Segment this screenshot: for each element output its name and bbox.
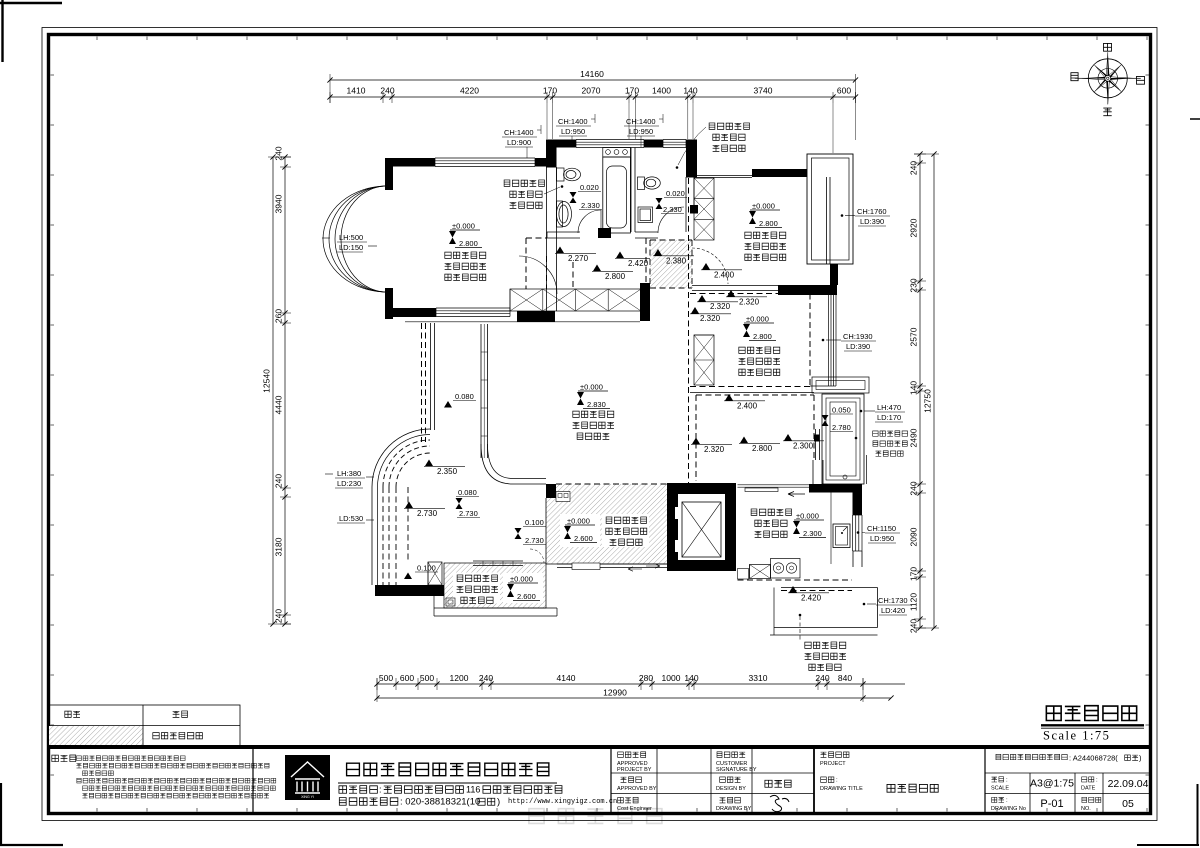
- svg-text:0.100: 0.100: [525, 518, 544, 527]
- svg-text:140: 140: [684, 673, 698, 683]
- svg-text::: :: [379, 785, 382, 795]
- svg-text:170: 170: [543, 86, 557, 96]
- svg-text:P-01: P-01: [1040, 798, 1063, 810]
- svg-text:CH:1400: CH:1400: [504, 128, 534, 137]
- svg-text:DATE: DATE: [1081, 786, 1096, 792]
- svg-text:2490: 2490: [909, 428, 919, 447]
- svg-text:2.270: 2.270: [568, 254, 589, 263]
- svg-text:14160: 14160: [580, 69, 604, 79]
- svg-text:240: 240: [815, 673, 829, 683]
- svg-text:12540: 12540: [262, 369, 272, 393]
- svg-text:A3@1:75: A3@1:75: [1030, 778, 1074, 790]
- svg-text:2.380: 2.380: [666, 257, 687, 266]
- svg-text:2.800: 2.800: [753, 332, 772, 341]
- svg-text:LD:390: LD:390: [846, 342, 870, 351]
- svg-text:±0.000: ±0.000: [796, 512, 819, 521]
- svg-text:LH:500: LH:500: [339, 233, 363, 242]
- svg-text:LD:950: LD:950: [561, 127, 585, 136]
- svg-text:2.780: 2.780: [832, 423, 851, 432]
- svg-text:600: 600: [400, 673, 414, 683]
- svg-text:280: 280: [639, 673, 653, 683]
- svg-text:2.400: 2.400: [737, 402, 758, 411]
- svg-text:2.300: 2.300: [793, 442, 814, 451]
- svg-text:3180: 3180: [274, 537, 284, 556]
- svg-text:2.730: 2.730: [417, 509, 438, 518]
- svg-text:LD:530: LD:530: [339, 514, 363, 523]
- svg-text:1400: 1400: [652, 86, 671, 96]
- svg-text:2070: 2070: [582, 86, 601, 96]
- svg-text:3740: 3740: [754, 86, 773, 96]
- svg-text:PROJECT: PROJECT: [820, 761, 846, 767]
- svg-text:840: 840: [838, 673, 852, 683]
- svg-text:116: 116: [466, 785, 480, 795]
- svg-text:2.420: 2.420: [801, 594, 822, 603]
- svg-text:CH:1730: CH:1730: [878, 596, 908, 605]
- svg-text:NO.: NO.: [1081, 806, 1091, 812]
- svg-text:2.830: 2.830: [587, 400, 606, 409]
- svg-text:1410: 1410: [347, 86, 366, 96]
- svg-text:4440: 4440: [274, 395, 284, 414]
- svg-text:240: 240: [274, 609, 284, 623]
- svg-text:22.09.04: 22.09.04: [1108, 778, 1149, 790]
- svg-text:240: 240: [274, 146, 284, 160]
- svg-text:240: 240: [909, 481, 919, 495]
- svg-text:PROJECT BY: PROJECT BY: [617, 767, 652, 773]
- svg-text:240: 240: [909, 619, 919, 633]
- svg-text:APPROVED BY: APPROVED BY: [617, 786, 657, 792]
- svg-text:12750: 12750: [923, 389, 933, 413]
- svg-text:260: 260: [274, 309, 284, 323]
- svg-text:DRAWING TITLE: DRAWING TITLE: [820, 786, 863, 792]
- svg-text:0.100: 0.100: [417, 564, 436, 573]
- svg-text:LD:170: LD:170: [877, 413, 901, 422]
- svg-text:2920: 2920: [909, 218, 919, 237]
- svg-text:240: 240: [380, 86, 394, 96]
- svg-text:240: 240: [274, 474, 284, 488]
- svg-text:170: 170: [909, 567, 919, 581]
- svg-text:240: 240: [909, 161, 919, 175]
- svg-text:12990: 12990: [603, 688, 627, 698]
- svg-text:3310: 3310: [749, 673, 768, 683]
- svg-text:140: 140: [683, 86, 697, 96]
- svg-text:2.320: 2.320: [739, 298, 760, 307]
- svg-text:4220: 4220: [460, 86, 479, 96]
- svg-text:2.600: 2.600: [574, 534, 593, 543]
- svg-text:2.730: 2.730: [525, 536, 544, 545]
- svg-text:XING YI: XING YI: [301, 795, 314, 799]
- svg-text:CH:1150: CH:1150: [867, 524, 896, 533]
- svg-text:: A244068728(: : A244068728(: [1069, 754, 1118, 763]
- svg-text:0.080: 0.080: [458, 488, 477, 497]
- svg-text:2.320: 2.320: [710, 302, 731, 311]
- svg-text:1200: 1200: [450, 673, 469, 683]
- svg-text:2090: 2090: [909, 527, 919, 546]
- svg-text:1120: 1120: [909, 593, 919, 612]
- svg-text:2570: 2570: [909, 327, 919, 346]
- svg-text:240: 240: [479, 673, 493, 683]
- svg-text:LD:420: LD:420: [881, 606, 905, 615]
- svg-text:±0.000: ±0.000: [746, 315, 769, 324]
- svg-text:140: 140: [909, 381, 919, 395]
- svg-text:CH:1400: CH:1400: [626, 117, 656, 126]
- svg-text:2.800: 2.800: [459, 239, 478, 248]
- svg-text:500: 500: [420, 673, 434, 683]
- svg-text:2.320: 2.320: [700, 314, 721, 323]
- svg-text:LD:950: LD:950: [629, 127, 653, 136]
- svg-text:170: 170: [625, 86, 639, 96]
- svg-text:2.300: 2.300: [803, 529, 822, 538]
- svg-text:0.050: 0.050: [832, 406, 851, 415]
- svg-text:±0.000: ±0.000: [580, 383, 603, 392]
- svg-text:http://www.xingyigz.com.cn: http://www.xingyigz.com.cn: [508, 798, 617, 806]
- svg-text:1000: 1000: [662, 673, 681, 683]
- svg-text:LD:390: LD:390: [860, 217, 884, 226]
- svg-text:500: 500: [379, 673, 393, 683]
- svg-text:LD:950: LD:950: [870, 534, 894, 543]
- svg-text:±0.000: ±0.000: [510, 575, 533, 584]
- svg-text:CH:1400: CH:1400: [558, 117, 588, 126]
- svg-text:2.350: 2.350: [437, 467, 458, 476]
- svg-text:2.320: 2.320: [704, 445, 725, 454]
- svg-text:2.800: 2.800: [752, 444, 773, 453]
- svg-text:LD:150: LD:150: [339, 243, 363, 252]
- svg-text:CH:1760: CH:1760: [857, 207, 887, 216]
- svg-text:±0.000: ±0.000: [567, 517, 590, 526]
- svg-text:LD:900: LD:900: [507, 138, 531, 147]
- svg-text:05: 05: [1122, 798, 1134, 810]
- svg-text:SCALE: SCALE: [991, 786, 1009, 792]
- svg-text:DESIGN BY: DESIGN BY: [716, 786, 746, 792]
- svg-text:Cost Engineer: Cost Engineer: [617, 806, 652, 812]
- svg-text:): ): [497, 797, 500, 808]
- svg-text:600: 600: [837, 86, 851, 96]
- svg-text:Scale 1:75: Scale 1:75: [1043, 729, 1110, 743]
- svg-text:0.020: 0.020: [666, 189, 685, 198]
- svg-text:3940: 3940: [274, 194, 284, 213]
- svg-text:±0.000: ±0.000: [752, 202, 775, 211]
- svg-text:DRAWING BY: DRAWING BY: [716, 806, 752, 812]
- svg-text:2.800: 2.800: [605, 272, 626, 281]
- svg-text:2.600: 2.600: [517, 592, 536, 601]
- svg-text:±0.000: ±0.000: [452, 222, 475, 231]
- svg-text:2.800: 2.800: [759, 219, 778, 228]
- svg-text:2.420: 2.420: [628, 259, 649, 268]
- svg-text:LH:470: LH:470: [877, 403, 901, 412]
- svg-text:DRAWING No: DRAWING No: [991, 806, 1026, 812]
- svg-text:2.330: 2.330: [581, 201, 600, 210]
- svg-text:0.020: 0.020: [580, 183, 599, 192]
- svg-text:2.400: 2.400: [714, 271, 735, 280]
- svg-text:CH:1930: CH:1930: [843, 332, 873, 341]
- svg-text:4140: 4140: [557, 673, 576, 683]
- svg-text:2.730: 2.730: [459, 509, 478, 518]
- svg-text:LD:230: LD:230: [337, 479, 361, 488]
- svg-text:230: 230: [909, 278, 919, 292]
- svg-text:SIGNATURE BY: SIGNATURE BY: [716, 767, 757, 773]
- svg-text:LH:380: LH:380: [337, 469, 361, 478]
- svg-text:0.080: 0.080: [455, 392, 474, 401]
- svg-text:: 020-38818321(10: : 020-38818321(10: [400, 797, 480, 808]
